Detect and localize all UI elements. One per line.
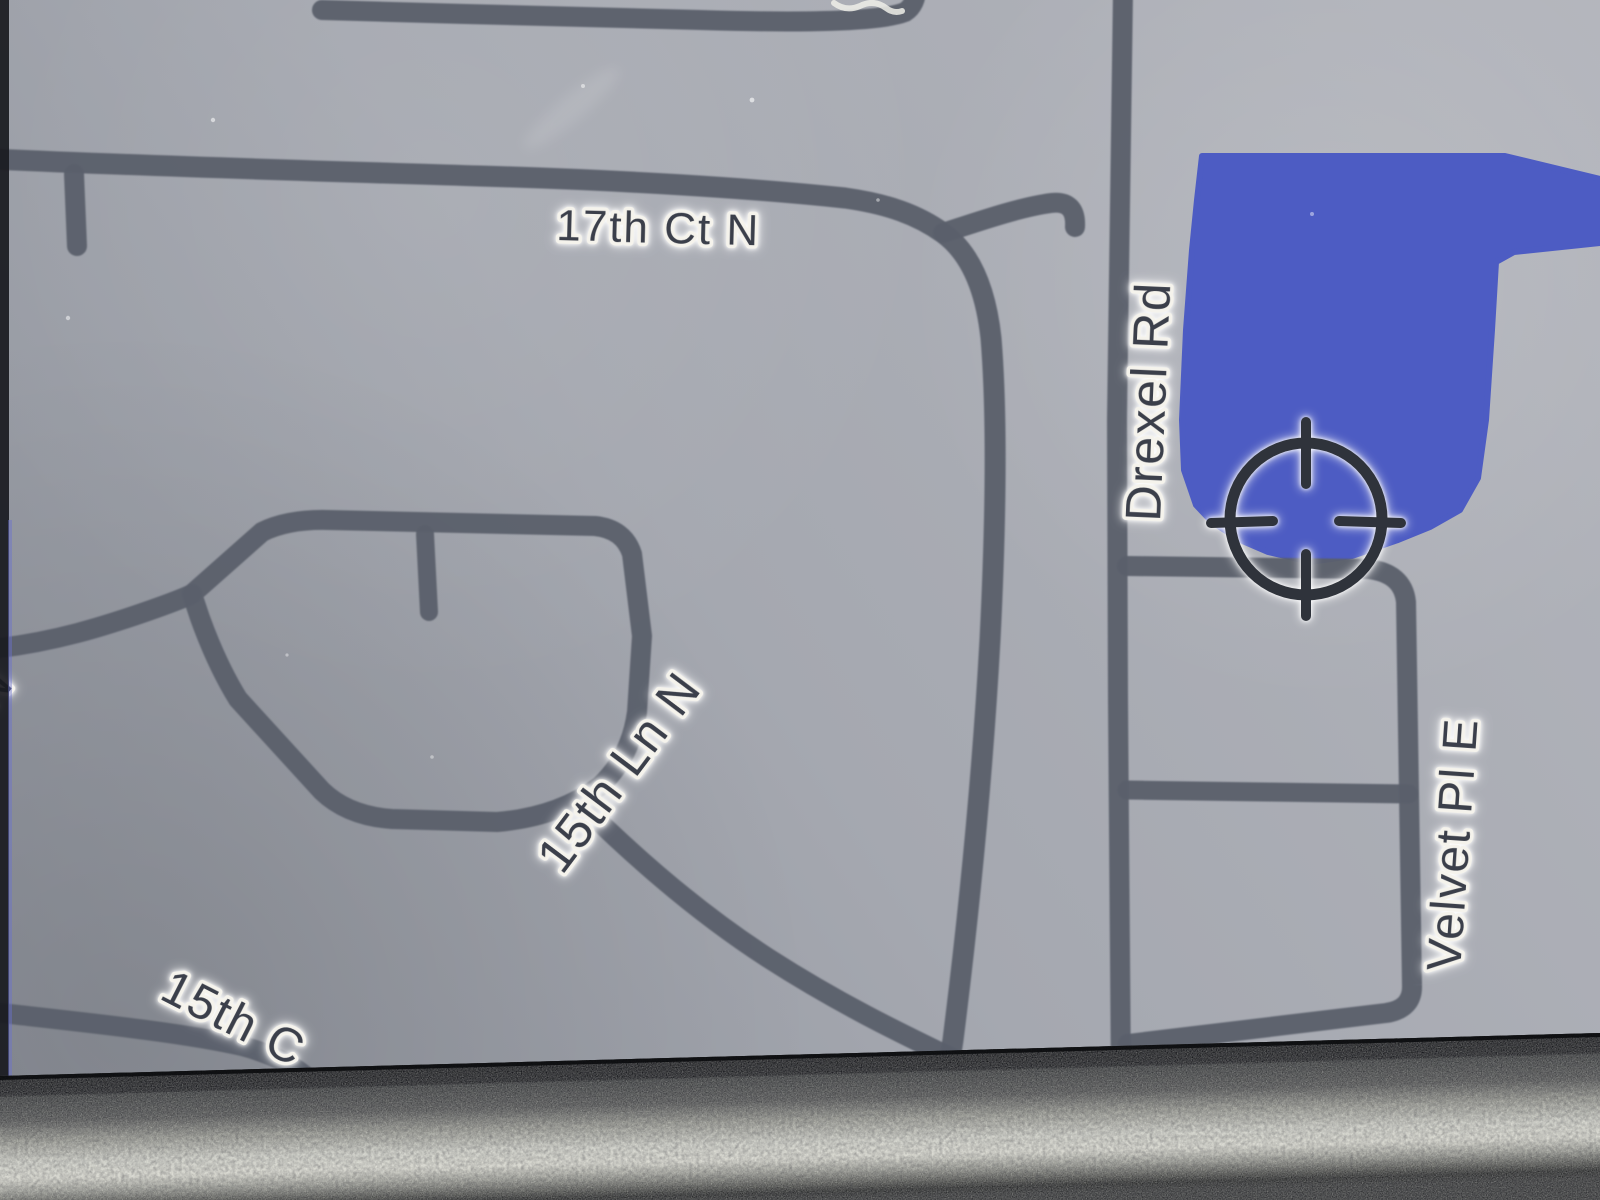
connector-road-mid [1127, 790, 1409, 794]
map-canvas[interactable]: 17th Ct N Drexel Rd 15th Ln N Velvet Pl … [0, 0, 1600, 1080]
street-label-drexel-rd: Drexel Rd [1115, 280, 1181, 523]
dashboard-photo: 17th Ct N Drexel Rd 15th Ln N Velvet Pl … [0, 0, 1600, 1200]
road-17th-stub [74, 174, 77, 246]
screen-left-edge [0, 0, 9, 1080]
screen-left-edge-reflection [8, 520, 12, 1080]
loop-stub-road [425, 534, 429, 612]
drexel-rd-road [1117, 0, 1123, 1080]
street-label-17th-ct-n: 17th Ct N [556, 201, 761, 255]
nav-screen[interactable]: 17th Ct N Drexel Rd 15th Ln N Velvet Pl … [0, 0, 1600, 1080]
